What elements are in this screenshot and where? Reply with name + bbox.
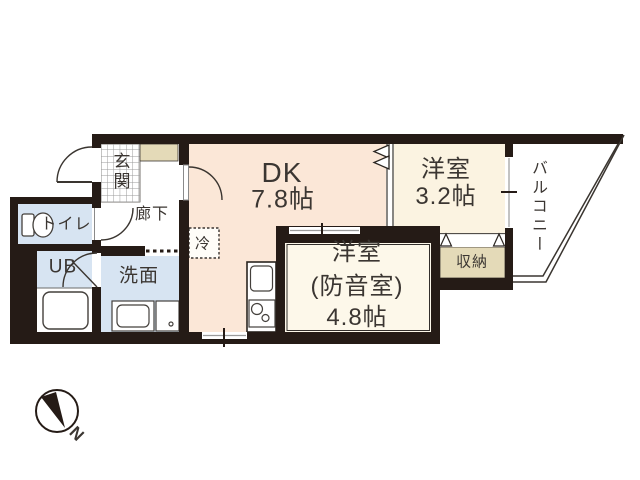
compass-icon [36,390,78,432]
entrance-label: 玄関 [112,152,129,192]
kitchen-counter [247,262,276,332]
toilet-label: トイレ [40,217,91,233]
western-room-size-label: 3.2帖 [415,185,476,209]
entrance-door [57,147,92,182]
dk-door-leaf [184,165,189,200]
corridor-label: 廊下 [135,207,169,223]
closet-bifold-doors [440,233,505,247]
unit-bath-label: UB [49,258,77,277]
unit-bath-door-opening [92,253,101,287]
entrance-door-opening [92,148,101,182]
dk-size-label: 7.8帖 [251,188,315,213]
kitchen-sink-icon [251,266,273,291]
shoe-cabinet [140,144,178,161]
floor-plan: 玄関 廊下 トイレ UB 洗面 DK 7.8帖 冷 洋室 (防音室) 4.8帖 … [0,0,640,480]
washbasin-icon [156,301,179,331]
refrigerator-label: 冷 [195,237,211,252]
toilet-door-opening [92,208,101,240]
closet-label: 収納 [456,255,488,270]
western-room-label: 洋室 [421,158,471,182]
soundproof-room-sublabel: (防音室) [311,275,404,299]
soundproof-room-size-label: 4.8帖 [326,306,387,330]
washing-machine-icon [112,301,154,331]
dk-label: DK [262,159,303,187]
toilet-door-arc [101,208,133,240]
soundproof-room-label: 洋室 [332,241,382,265]
washroom-label: 洗面 [119,267,159,286]
bathtub-icon [43,292,88,329]
balcony-label: バルコニー [529,160,545,255]
